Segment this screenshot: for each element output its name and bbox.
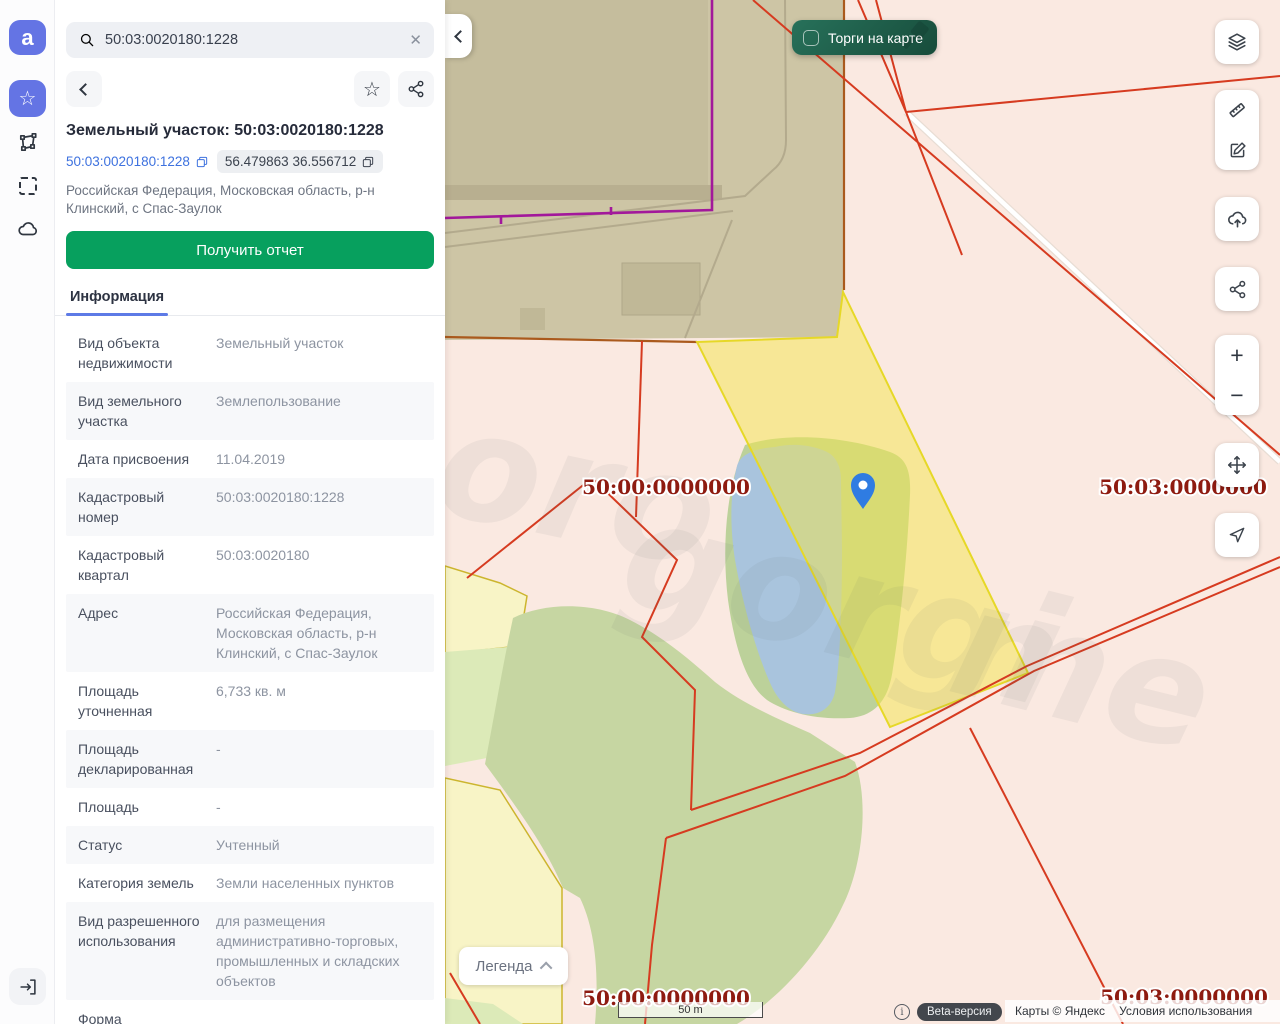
share-button[interactable] — [398, 71, 434, 107]
app-logo-icon[interactable]: a — [9, 20, 46, 55]
search-icon — [78, 31, 96, 49]
area-select-icon[interactable] — [9, 167, 46, 204]
coordinates-text: 56.479863 36.556712 — [225, 154, 356, 169]
terms-link[interactable]: Условия использования — [1119, 1004, 1252, 1018]
row-value: - — [216, 739, 422, 779]
ruler-button[interactable] — [1215, 90, 1259, 130]
info-table: Вид объекта недвижимости Земельный участ… — [66, 324, 434, 1024]
copy-icon[interactable] — [195, 155, 209, 169]
chevron-up-icon — [539, 961, 552, 974]
clear-search-icon[interactable]: ✕ — [409, 31, 422, 49]
icon-rail: a ☆ — [0, 0, 55, 1024]
row-value: Учтенный — [216, 835, 422, 855]
favorites-star-icon[interactable]: ☆ — [9, 80, 46, 117]
building-edge — [445, 185, 722, 200]
zoom-out-button[interactable]: − — [1215, 375, 1259, 415]
edit-icon — [1227, 140, 1248, 161]
table-row: Вид земельного участка Землепользование — [66, 382, 434, 440]
exit-icon[interactable] — [9, 968, 46, 1005]
page-title: Земельный участок: 50:03:0020180:1228 — [66, 122, 434, 140]
row-label: Форма — [78, 1009, 206, 1024]
share-map-button[interactable] — [1215, 267, 1259, 311]
minus-icon: − — [1230, 384, 1243, 407]
row-label: Статус — [78, 835, 206, 855]
row-label: Дата присвоения — [78, 449, 206, 469]
collapse-sidebar-button[interactable] — [445, 14, 472, 58]
row-value: 50:03:0020180:1228 — [216, 487, 422, 527]
zoom-in-button[interactable]: + — [1215, 335, 1259, 375]
map-attribution: Карты © Яндекс Условия использования — [1005, 1000, 1280, 1022]
copy-icon[interactable] — [361, 155, 375, 169]
row-value: 6,733 кв. м — [216, 681, 422, 721]
plus-icon: + — [1230, 344, 1243, 367]
gavel-icon — [895, 20, 935, 55]
measure-polygon-icon[interactable] — [9, 123, 46, 160]
row-value — [216, 1009, 422, 1024]
table-row: Площадь уточненная 6,733 кв. м — [66, 672, 434, 730]
table-row: Кадастровый номер 50:03:0020180:1228 — [66, 478, 434, 536]
cloud-icon[interactable] — [9, 211, 46, 248]
table-row: Дата присвоения 11.04.2019 — [66, 440, 434, 478]
cadastral-map-app: a ☆ ✕ ☆ Земельный участок: 50:03:0020180… — [0, 0, 1280, 1024]
building — [622, 263, 700, 315]
row-label: Кадастровый квартал — [78, 545, 206, 585]
navigation-arrow-icon — [1227, 525, 1247, 545]
table-row: Кадастровый квартал 50:03:0020180 — [66, 536, 434, 594]
back-button[interactable] — [66, 71, 102, 107]
checkbox-icon[interactable] — [803, 30, 819, 46]
watermark-text: me — [936, 556, 1228, 787]
table-row: Вид разрешенного использования для разме… — [66, 902, 434, 1000]
ruler-icon — [1226, 99, 1248, 121]
row-label: Категория земель — [78, 873, 206, 893]
beta-badge: Beta-версия — [917, 1003, 1002, 1021]
table-row: Площадь - — [66, 788, 434, 826]
table-row: Статус Учтенный — [66, 826, 434, 864]
map-layers: oro gorgi me 50:00:0000000 50:03:0000000… — [445, 0, 1280, 1024]
sidebar-tabs: Информация — [55, 283, 445, 316]
row-value: Земельный участок — [216, 333, 422, 373]
row-label: Кадастровый номер — [78, 487, 206, 527]
row-label: Вид земельного участка — [78, 391, 206, 431]
object-chips: 50:03:0020180:1228 56.479863 36.556712 — [66, 150, 434, 173]
info-icon[interactable]: i — [894, 1004, 910, 1020]
table-row: Адрес Российская Федерация, Московская о… — [66, 594, 434, 672]
move-icon — [1226, 454, 1248, 476]
object-actions: ☆ — [66, 71, 434, 107]
table-row: Вид объекта недвижимости Земельный участ… — [66, 324, 434, 382]
legend-label: Легенда — [475, 958, 532, 975]
share-icon — [406, 79, 426, 99]
row-value: 50:03:0020180 — [216, 545, 422, 585]
zoom-group: + − — [1215, 335, 1259, 415]
share-icon — [1227, 279, 1248, 300]
row-label: Вид объекта недвижимости — [78, 333, 206, 373]
table-row: Форма — [66, 1000, 434, 1024]
row-value: 11.04.2019 — [216, 449, 422, 469]
table-row: Площадь декларированная - — [66, 730, 434, 788]
quarter-label-nw: 50:00:0000000 — [582, 475, 750, 499]
row-label: Адрес — [78, 603, 206, 663]
search-input[interactable] — [105, 32, 400, 48]
object-sidebar: ✕ ☆ Земельный участок: 50:03:0020180:122… — [55, 0, 445, 1024]
cloud-upload-icon — [1226, 208, 1249, 231]
building — [520, 308, 545, 330]
cadastral-number-chip[interactable]: 50:03:0020180:1228 — [66, 154, 209, 169]
legend-button[interactable]: Легенда — [459, 947, 568, 985]
tab-information[interactable]: Информация — [66, 283, 168, 315]
row-label: Площадь — [78, 797, 206, 817]
favorite-button[interactable]: ☆ — [354, 71, 390, 107]
get-report-button[interactable]: Получить отчет — [66, 231, 434, 269]
building — [445, 0, 708, 185]
chevron-left-icon — [454, 30, 467, 43]
layers-icon — [1226, 31, 1248, 53]
row-label: Вид разрешенного использования — [78, 911, 206, 991]
search-bar[interactable]: ✕ — [66, 22, 434, 58]
object-address: Российская Федерация, Московская область… — [66, 182, 434, 218]
coordinates-chip[interactable]: 56.479863 36.556712 — [217, 150, 383, 173]
row-value: Земли населенных пунктов — [216, 873, 422, 893]
row-label: Площадь уточненная — [78, 681, 206, 721]
draw-edit-button[interactable] — [1215, 130, 1259, 170]
layers-button[interactable] — [1215, 20, 1259, 64]
measure-tools-group — [1215, 90, 1259, 170]
row-value: Российская Федерация, Московская область… — [216, 603, 422, 663]
upload-button[interactable] — [1215, 197, 1259, 241]
row-value: для размещения административно-торговых,… — [216, 911, 422, 991]
row-value: Землепользование — [216, 391, 422, 431]
table-row: Категория земель Земли населенных пункто… — [66, 864, 434, 902]
trades-on-map-toggle[interactable]: Торги на карте — [792, 20, 937, 55]
pan-mode-button[interactable] — [1215, 443, 1259, 487]
cadastral-number-text: 50:03:0020180:1228 — [66, 154, 190, 169]
map-canvas[interactable]: oro gorgi me 50:00:0000000 50:03:0000000… — [445, 0, 1280, 1024]
row-label: Площадь декларированная — [78, 739, 206, 779]
attribution-text: Карты © Яндекс — [1015, 1004, 1105, 1018]
locate-me-button[interactable] — [1215, 513, 1259, 557]
scale-label: 50 m — [678, 1004, 702, 1016]
row-value: - — [216, 797, 422, 817]
scale-bar: 50 m — [618, 1002, 763, 1018]
star-icon: ☆ — [363, 77, 381, 102]
